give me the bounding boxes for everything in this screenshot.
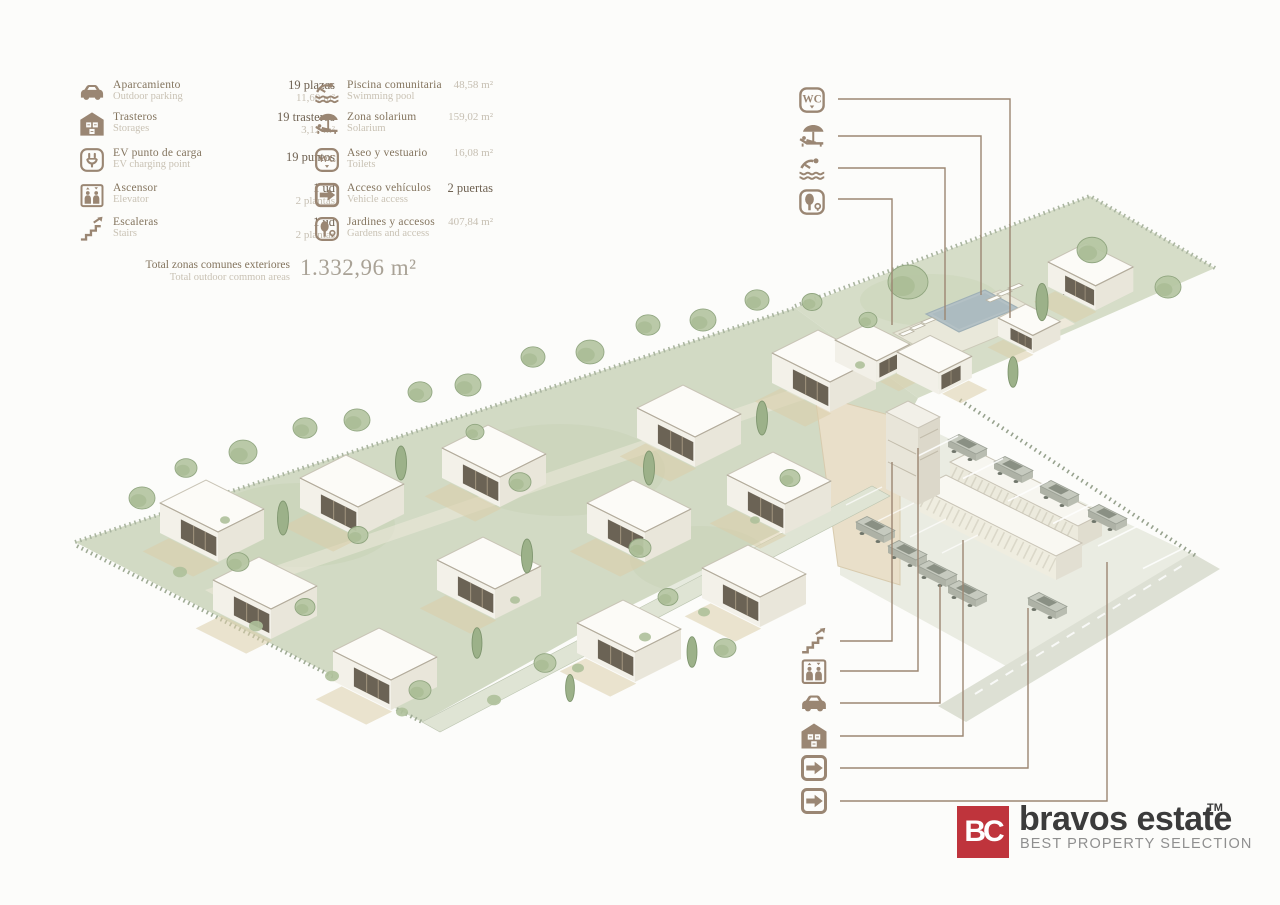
tree xyxy=(344,409,370,431)
tree xyxy=(629,539,651,558)
tree xyxy=(780,470,800,487)
shrub xyxy=(220,516,230,524)
legend-value: 19 plazas xyxy=(147,79,335,92)
tree xyxy=(175,459,197,478)
callout-solarium-icon xyxy=(797,121,827,151)
tree xyxy=(227,553,249,572)
site-plan-page: AparcamientoOutdoor parking 19 plazas11,… xyxy=(0,0,1280,905)
gardens-icon xyxy=(313,215,341,243)
tree xyxy=(1077,237,1107,263)
tree xyxy=(509,473,531,492)
tree xyxy=(408,382,432,402)
callout-parking-icon xyxy=(799,688,829,718)
shrub xyxy=(510,596,520,604)
elevator-icon xyxy=(78,181,106,209)
shrub xyxy=(855,361,865,369)
tree xyxy=(409,681,431,700)
callout-access-2-icon xyxy=(799,786,829,816)
callout-gardens-icon xyxy=(797,187,827,217)
shrub xyxy=(572,664,584,673)
tree xyxy=(859,312,877,327)
callout-pool-icon xyxy=(797,153,827,183)
wc-icon xyxy=(313,146,341,174)
tree xyxy=(690,309,716,331)
callout-elevator-icon xyxy=(799,656,829,686)
cypress-tree xyxy=(1036,283,1048,320)
logo-trademark: TM xyxy=(1207,802,1223,814)
tree xyxy=(1155,276,1181,298)
shrub xyxy=(325,671,339,682)
callout-storage-icon xyxy=(799,721,829,751)
cypress-tree xyxy=(644,451,655,485)
total-common-areas-value: 1.332,96 m² xyxy=(300,255,417,281)
tree xyxy=(636,315,660,335)
tree xyxy=(229,440,257,464)
tree xyxy=(348,527,368,544)
logo-tagline: BEST PROPERTY SELECTION xyxy=(1020,836,1252,852)
shrub xyxy=(698,608,710,617)
cypress-tree xyxy=(1008,357,1018,388)
cypress-tree xyxy=(757,401,768,435)
cypress-tree xyxy=(687,637,697,668)
parking-icon xyxy=(78,78,106,106)
cypress-tree xyxy=(396,446,407,480)
tree xyxy=(295,599,315,616)
shrub xyxy=(639,633,651,642)
tree xyxy=(534,654,556,673)
ev-charging-icon xyxy=(78,146,106,174)
tree xyxy=(129,487,155,509)
tree xyxy=(714,639,736,658)
tree xyxy=(802,294,822,311)
tree xyxy=(888,265,928,299)
tree xyxy=(658,589,678,606)
tree xyxy=(293,418,317,438)
shrub xyxy=(750,516,760,524)
stairs-icon xyxy=(78,215,106,243)
cypress-tree xyxy=(472,628,482,659)
shrub xyxy=(173,567,187,578)
cypress-tree xyxy=(278,501,289,535)
logo-name: bravos estate xyxy=(1019,800,1232,839)
legend-subvalue: 11,60 m² xyxy=(147,92,335,105)
tree xyxy=(466,424,484,439)
callout-stairs-icon xyxy=(799,626,829,656)
shrub xyxy=(487,695,501,706)
callout-wc-icon xyxy=(797,85,827,115)
logo-monogram: BC xyxy=(957,806,1009,858)
cypress-tree xyxy=(566,674,575,701)
cypress-tree xyxy=(522,539,533,573)
tree xyxy=(745,290,769,310)
shrub xyxy=(249,621,263,632)
solarium-icon xyxy=(313,110,341,138)
pool-icon xyxy=(313,78,341,106)
tree xyxy=(521,347,545,367)
shrub xyxy=(396,708,408,717)
brand-logo: BC bravos estate TM BEST PROPERTY SELECT… xyxy=(957,804,1257,866)
tree xyxy=(576,340,604,364)
total-common-areas-label: Total zonas comunes exteriores Total out… xyxy=(70,259,290,284)
vehicle-access-icon xyxy=(313,181,341,209)
callout-access-1-icon xyxy=(799,753,829,783)
storage-icon xyxy=(78,110,106,138)
tree xyxy=(455,374,481,396)
